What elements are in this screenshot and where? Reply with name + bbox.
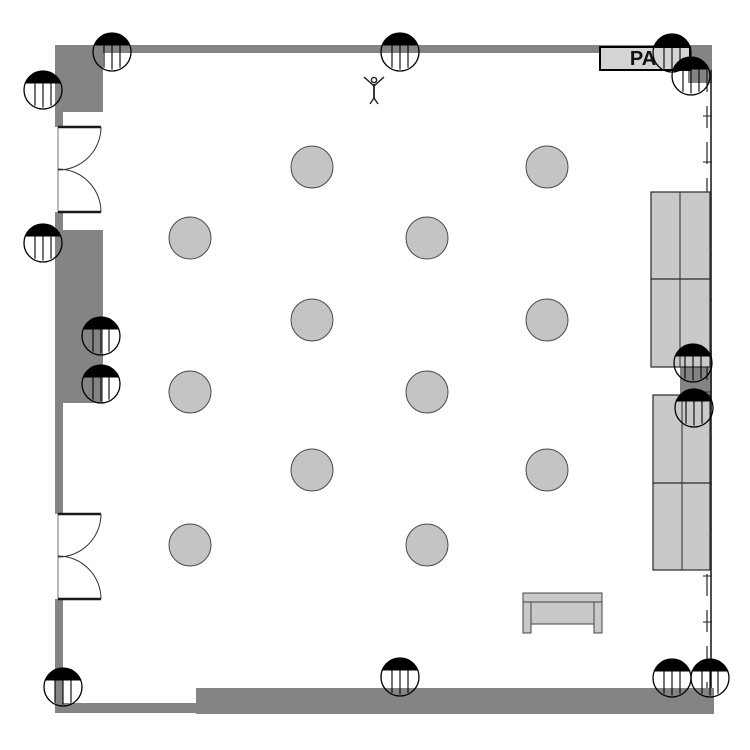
left-wall-lower — [55, 599, 63, 713]
bench-seat — [531, 602, 594, 624]
left-wall-between-doors — [55, 212, 63, 230]
top-left-block — [55, 45, 103, 112]
floor-plan: PA — [0, 0, 750, 750]
bottom-wall-thick — [196, 688, 714, 714]
round-table — [526, 449, 568, 491]
round-table — [291, 299, 333, 341]
left-wall-mid — [55, 403, 63, 514]
bottom-wall-thin — [55, 703, 196, 713]
round-table — [526, 299, 568, 341]
bench-left-arm — [523, 602, 531, 633]
bench-back — [523, 593, 602, 602]
round-table — [406, 217, 448, 259]
round-table — [406, 371, 448, 413]
round-table — [169, 371, 211, 413]
round-table — [169, 217, 211, 259]
floor-plan-drawing: PA — [0, 0, 750, 750]
bench-right-arm — [594, 602, 602, 633]
pa-label: PA — [630, 48, 656, 70]
round-table — [291, 449, 333, 491]
left-wall-upper — [55, 112, 63, 127]
round-table — [169, 524, 211, 566]
round-table — [406, 524, 448, 566]
round-table — [526, 146, 568, 188]
round-table — [291, 146, 333, 188]
